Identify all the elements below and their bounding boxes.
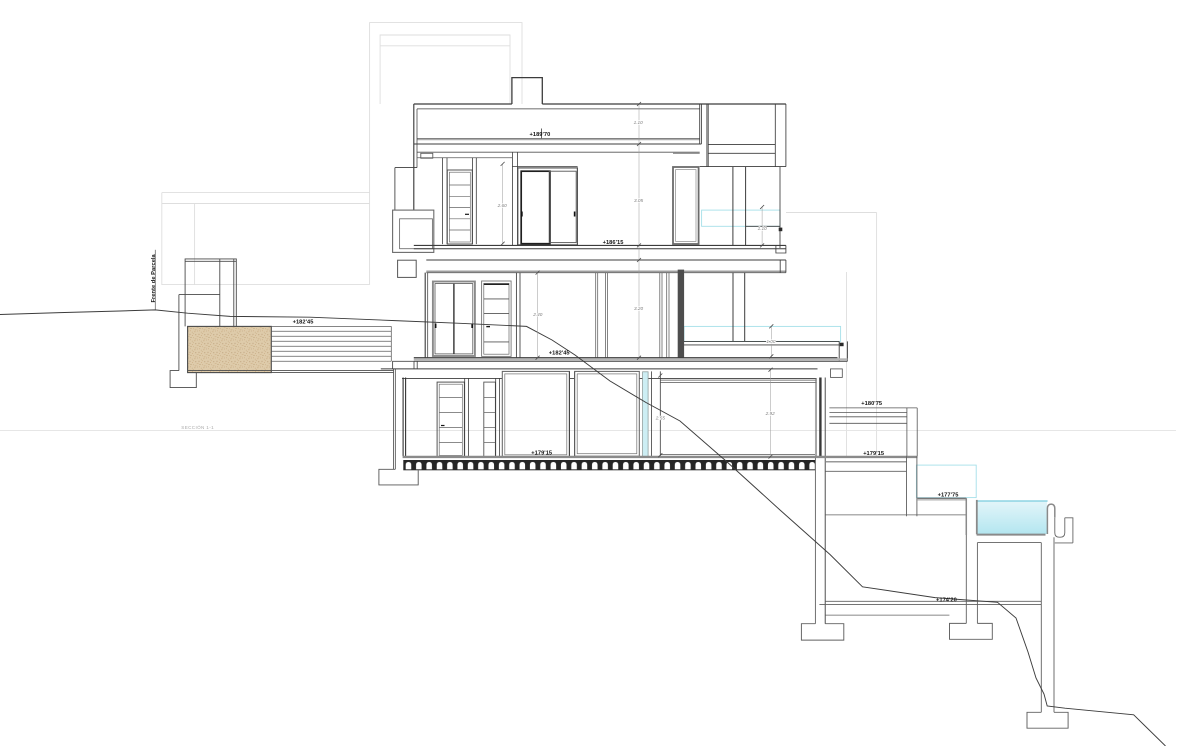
svg-text:+182'45: +182'45: [549, 351, 570, 357]
svg-text:2.60: 2.60: [497, 203, 508, 208]
svg-text:+177'75: +177'75: [938, 492, 959, 498]
svg-text:+182'45: +182'45: [293, 319, 314, 325]
svg-text:1.00: 1.00: [766, 339, 776, 344]
svg-text:1.10: 1.10: [758, 226, 768, 231]
svg-text:1.10: 1.10: [634, 120, 644, 125]
svg-text:3.20: 3.20: [634, 306, 644, 311]
svg-text:2.40: 2.40: [532, 312, 543, 317]
svg-text:3.05: 3.05: [634, 198, 644, 203]
svg-text:2.92: 2.92: [765, 411, 776, 416]
svg-text:+186'15: +186'15: [603, 240, 624, 246]
svg-text:+174'20: +174'20: [936, 598, 957, 604]
svg-text:+180'75: +180'75: [861, 401, 882, 407]
svg-text:SECCIÓN 1-1: SECCIÓN 1-1: [181, 424, 214, 430]
svg-text:+179'15: +179'15: [531, 451, 552, 457]
svg-text:2.55: 2.55: [655, 415, 666, 420]
svg-text:+179'15: +179'15: [863, 451, 884, 457]
svg-text:Frente de Parcela: Frente de Parcela: [151, 253, 157, 302]
svg-text:+189'70: +189'70: [530, 132, 551, 138]
